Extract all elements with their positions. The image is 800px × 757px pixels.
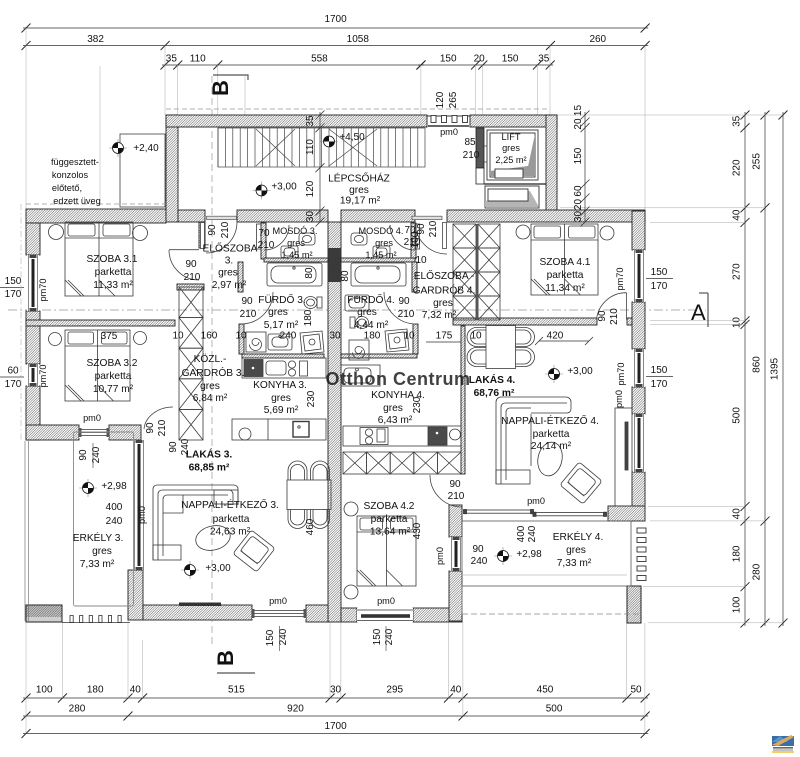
svg-text:260: 260 xyxy=(589,34,606,45)
svg-text:LÉPCSŐHÁZ: LÉPCSŐHÁZ xyxy=(328,171,390,185)
svg-text:+4,50: +4,50 xyxy=(339,132,365,143)
svg-text:11,34 m²: 11,34 m² xyxy=(545,283,585,294)
svg-text:180: 180 xyxy=(732,545,743,562)
svg-text:parketta: parketta xyxy=(95,371,132,382)
svg-text:30: 30 xyxy=(305,211,316,223)
svg-text:24,14 m²: 24,14 m² xyxy=(531,441,572,452)
svg-text:SZOBA 3.2: SZOBA 3.2 xyxy=(87,358,138,369)
svg-text:2,97 m²: 2,97 m² xyxy=(212,280,247,291)
svg-text:gres: gres xyxy=(287,238,305,248)
svg-text:500: 500 xyxy=(546,704,563,715)
svg-text:gres: gres xyxy=(357,307,377,318)
svg-text:210: 210 xyxy=(258,240,275,251)
svg-text:+2,40: +2,40 xyxy=(133,143,159,154)
svg-text:+3,00: +3,00 xyxy=(271,182,297,193)
svg-text:170: 170 xyxy=(5,289,22,300)
svg-text:ERKÉLY 3.: ERKÉLY 3. xyxy=(73,531,124,544)
svg-text:120: 120 xyxy=(305,180,316,197)
svg-text:pm0: pm0 xyxy=(377,596,395,606)
svg-text:SZOBA 3.1: SZOBA 3.1 xyxy=(87,254,138,265)
svg-text:70: 70 xyxy=(404,225,416,236)
svg-text:240: 240 xyxy=(106,516,123,527)
svg-text:210: 210 xyxy=(184,272,201,283)
svg-text:210: 210 xyxy=(220,221,231,238)
svg-text:MOSDÓ 3.: MOSDÓ 3. xyxy=(273,226,318,236)
svg-text:80: 80 xyxy=(304,267,315,279)
svg-text:6,84 m²: 6,84 m² xyxy=(193,393,228,404)
svg-text:280: 280 xyxy=(69,704,86,715)
svg-text:295: 295 xyxy=(386,685,403,696)
svg-text:68,85 m²: 68,85 m² xyxy=(189,463,230,474)
svg-text:1,45 m²: 1,45 m² xyxy=(281,250,312,260)
svg-text:860: 860 xyxy=(752,356,763,373)
svg-text:gres: gres xyxy=(271,393,291,404)
svg-text:11,33 m²: 11,33 m² xyxy=(93,280,133,291)
svg-text:FÜRDŐ 3.: FÜRDŐ 3. xyxy=(258,292,306,306)
svg-text:210: 210 xyxy=(240,309,257,320)
svg-text:7,33 m²: 7,33 m² xyxy=(80,559,115,570)
svg-text:100: 100 xyxy=(732,596,743,613)
svg-text:B: B xyxy=(208,80,233,96)
svg-text:20: 20 xyxy=(573,118,584,130)
svg-text:30: 30 xyxy=(573,211,584,223)
svg-text:1058: 1058 xyxy=(347,34,370,45)
svg-text:GARDRÓB 4.: GARDRÓB 4. xyxy=(413,284,476,297)
svg-text:30: 30 xyxy=(330,685,342,696)
svg-text:20: 20 xyxy=(474,54,486,65)
svg-text:pm0: pm0 xyxy=(614,390,624,408)
svg-text:7,33 m²: 7,33 m² xyxy=(557,558,592,569)
svg-text:GARDRÓB 3.: GARDRÓB 3. xyxy=(182,366,245,379)
svg-text:265: 265 xyxy=(448,91,459,108)
svg-text:pm0: pm0 xyxy=(83,413,101,423)
svg-text:382: 382 xyxy=(87,34,104,45)
svg-text:1,45 m²: 1,45 m² xyxy=(365,250,396,260)
svg-text:150: 150 xyxy=(502,54,519,65)
svg-text:120: 120 xyxy=(435,91,446,108)
svg-text:10,77 m²: 10,77 m² xyxy=(93,384,134,395)
svg-text:függesztett-: függesztett- xyxy=(51,157,99,167)
svg-text:90: 90 xyxy=(78,449,89,461)
svg-text:210: 210 xyxy=(398,309,415,320)
svg-text:220: 220 xyxy=(732,159,743,176)
svg-text:210: 210 xyxy=(428,220,439,237)
svg-text:+2,98: +2,98 xyxy=(101,481,127,492)
svg-text:pm70: pm70 xyxy=(38,365,48,388)
svg-text:gres: gres xyxy=(218,268,238,279)
svg-text:pm0: pm0 xyxy=(137,506,147,524)
svg-text:240: 240 xyxy=(527,525,538,542)
svg-text:edzett üveg: edzett üveg xyxy=(53,196,101,206)
svg-text:24,63 m²: 24,63 m² xyxy=(210,527,251,538)
svg-text:parketta: parketta xyxy=(95,267,132,278)
svg-text:ELŐSZOBA: ELŐSZOBA xyxy=(203,241,258,255)
svg-text:170: 170 xyxy=(5,379,22,390)
svg-text:5,69 m²: 5,69 m² xyxy=(264,405,299,416)
svg-text:KÖZL.-: KÖZL.- xyxy=(194,353,227,365)
svg-text:400: 400 xyxy=(106,502,123,513)
svg-text:400: 400 xyxy=(516,525,527,542)
svg-text:pm0: pm0 xyxy=(435,547,445,565)
svg-text:150: 150 xyxy=(573,147,584,164)
svg-text:150: 150 xyxy=(651,267,668,278)
svg-text:Otthon Centrum: Otthon Centrum xyxy=(326,369,471,389)
svg-text:35: 35 xyxy=(305,115,316,127)
svg-text:pm70: pm70 xyxy=(615,268,625,291)
svg-text:19,17 m²: 19,17 m² xyxy=(340,196,381,207)
svg-text:10: 10 xyxy=(732,317,743,329)
svg-text:40: 40 xyxy=(732,508,743,520)
svg-text:gres: gres xyxy=(502,143,520,153)
svg-text:420: 420 xyxy=(547,331,564,342)
svg-text:110: 110 xyxy=(305,139,316,155)
svg-text:pm70: pm70 xyxy=(616,363,626,386)
svg-text:pm0: pm0 xyxy=(527,496,545,506)
svg-text:230: 230 xyxy=(412,396,423,413)
svg-text:150: 150 xyxy=(5,276,22,287)
svg-text:460: 460 xyxy=(305,518,316,535)
svg-text:255: 255 xyxy=(752,153,763,170)
svg-text:430: 430 xyxy=(412,522,423,539)
svg-text:180: 180 xyxy=(87,685,104,696)
svg-text:68,76 m²: 68,76 m² xyxy=(474,388,515,399)
svg-text:pm70: pm70 xyxy=(38,279,48,302)
svg-text:170: 170 xyxy=(651,379,668,390)
svg-text:210: 210 xyxy=(404,237,421,248)
svg-text:150: 150 xyxy=(651,365,668,376)
svg-text:40: 40 xyxy=(732,209,743,221)
svg-text:90: 90 xyxy=(207,224,218,236)
svg-text:90: 90 xyxy=(472,544,484,555)
svg-text:85: 85 xyxy=(464,137,476,148)
svg-text:90: 90 xyxy=(241,296,253,307)
svg-text:90: 90 xyxy=(185,259,197,270)
svg-text:13,64 m²: 13,64 m² xyxy=(370,527,411,538)
svg-text:170: 170 xyxy=(651,281,668,292)
svg-text:60: 60 xyxy=(7,366,19,377)
svg-text:gres: gres xyxy=(92,546,112,557)
svg-text:LAKÁS 3.: LAKÁS 3. xyxy=(186,448,233,461)
svg-text:80: 80 xyxy=(340,270,351,282)
svg-text:35: 35 xyxy=(538,54,550,65)
svg-text:515: 515 xyxy=(228,685,245,696)
svg-text:90: 90 xyxy=(168,441,179,453)
svg-text:90: 90 xyxy=(398,296,410,307)
svg-text:210: 210 xyxy=(463,150,480,161)
svg-text:30: 30 xyxy=(329,331,341,342)
svg-text:150: 150 xyxy=(265,629,276,646)
svg-text:ELŐSZOBA -: ELŐSZOBA - xyxy=(414,268,475,282)
svg-text:100: 100 xyxy=(36,685,53,696)
svg-text:210: 210 xyxy=(609,308,620,325)
svg-text:MOSDÓ 4.: MOSDÓ 4. xyxy=(359,226,404,236)
svg-text:60: 60 xyxy=(573,185,584,197)
svg-text:90: 90 xyxy=(145,422,156,434)
svg-text:280: 280 xyxy=(752,563,763,580)
svg-text:180: 180 xyxy=(303,309,314,326)
svg-text:LAKÁS 4.: LAKÁS 4. xyxy=(469,373,516,386)
svg-text:KONYHA 3.: KONYHA 3. xyxy=(253,380,307,391)
svg-text:10: 10 xyxy=(235,331,247,342)
svg-text:SZOBA 4.2: SZOBA 4.2 xyxy=(364,501,415,512)
svg-text:160: 160 xyxy=(201,331,218,342)
svg-text:450: 450 xyxy=(537,685,554,696)
svg-text:5,17 m²: 5,17 m² xyxy=(264,320,299,331)
svg-text:40: 40 xyxy=(130,685,142,696)
svg-text:150: 150 xyxy=(372,628,383,645)
svg-text:90: 90 xyxy=(449,479,461,490)
svg-text:B: B xyxy=(213,650,238,666)
svg-text:NAPPALI-ÉTKEZŐ 4.: NAPPALI-ÉTKEZŐ 4. xyxy=(501,413,599,427)
svg-text:2,25 m²: 2,25 m² xyxy=(495,155,526,165)
svg-text:gres: gres xyxy=(349,185,369,196)
svg-text:35: 35 xyxy=(166,54,178,65)
svg-text:1700: 1700 xyxy=(324,721,347,732)
svg-text:4,44 m²: 4,44 m² xyxy=(354,320,389,331)
svg-text:konzolos: konzolos xyxy=(52,170,89,180)
svg-text:10: 10 xyxy=(415,255,427,266)
svg-text:230: 230 xyxy=(306,390,317,407)
svg-text:pm0: pm0 xyxy=(440,127,458,137)
svg-text:210: 210 xyxy=(448,491,465,502)
svg-text:1700: 1700 xyxy=(324,14,347,25)
svg-text:NAPPALI-ÉTKEZŐ 3.: NAPPALI-ÉTKEZŐ 3. xyxy=(181,497,279,511)
svg-text:parketta: parketta xyxy=(533,429,570,440)
svg-text:50: 50 xyxy=(630,685,642,696)
svg-text:LIFT: LIFT xyxy=(502,132,521,142)
svg-text:SZOBA 4.1: SZOBA 4.1 xyxy=(540,257,591,268)
svg-text:270: 270 xyxy=(732,263,743,280)
svg-text:A: A xyxy=(691,300,706,325)
svg-text:gres: gres xyxy=(383,403,403,414)
svg-text:+3,00: +3,00 xyxy=(205,563,231,574)
svg-text:150: 150 xyxy=(440,54,457,65)
svg-text:FÜRDŐ 4.: FÜRDŐ 4. xyxy=(347,292,395,306)
svg-text:180: 180 xyxy=(364,331,381,342)
svg-text:40: 40 xyxy=(450,685,462,696)
svg-text:parketta: parketta xyxy=(213,514,250,525)
svg-text:15: 15 xyxy=(573,105,584,117)
svg-text:ERKÉLY 4.: ERKÉLY 4. xyxy=(553,530,604,543)
svg-text:3.: 3. xyxy=(225,256,234,267)
svg-text:90: 90 xyxy=(597,310,608,322)
svg-text:gres: gres xyxy=(433,298,453,309)
svg-text:240: 240 xyxy=(280,331,297,342)
svg-text:240: 240 xyxy=(180,438,191,455)
svg-text:558: 558 xyxy=(311,54,328,65)
svg-text:210: 210 xyxy=(157,419,168,436)
svg-text:gres: gres xyxy=(566,545,586,556)
svg-text:35: 35 xyxy=(732,115,743,127)
svg-text:175: 175 xyxy=(436,331,453,342)
svg-text:500: 500 xyxy=(732,407,743,424)
svg-text:10: 10 xyxy=(172,331,184,342)
svg-text:+3,00: +3,00 xyxy=(567,366,593,377)
svg-text:gres: gres xyxy=(200,381,220,392)
svg-text:375: 375 xyxy=(101,331,118,342)
svg-text:+2,98: +2,98 xyxy=(516,549,542,560)
svg-text:parketta: parketta xyxy=(547,270,584,281)
svg-text:7,32 m²: 7,32 m² xyxy=(422,310,457,321)
svg-text:10: 10 xyxy=(470,331,482,342)
svg-text:előtető,: előtető, xyxy=(52,183,82,193)
svg-text:20: 20 xyxy=(573,199,584,211)
svg-text:gres: gres xyxy=(375,238,393,248)
svg-text:pm0: pm0 xyxy=(269,596,287,606)
svg-text:6,43 m²: 6,43 m² xyxy=(378,415,413,426)
svg-text:gres: gres xyxy=(268,307,288,318)
svg-text:70: 70 xyxy=(258,228,270,239)
svg-text:110: 110 xyxy=(190,54,206,65)
svg-text:1395: 1395 xyxy=(770,357,781,380)
svg-text:240: 240 xyxy=(471,556,488,567)
svg-text:10: 10 xyxy=(403,331,415,342)
svg-text:920: 920 xyxy=(287,704,304,715)
svg-text:parketta: parketta xyxy=(371,514,408,525)
